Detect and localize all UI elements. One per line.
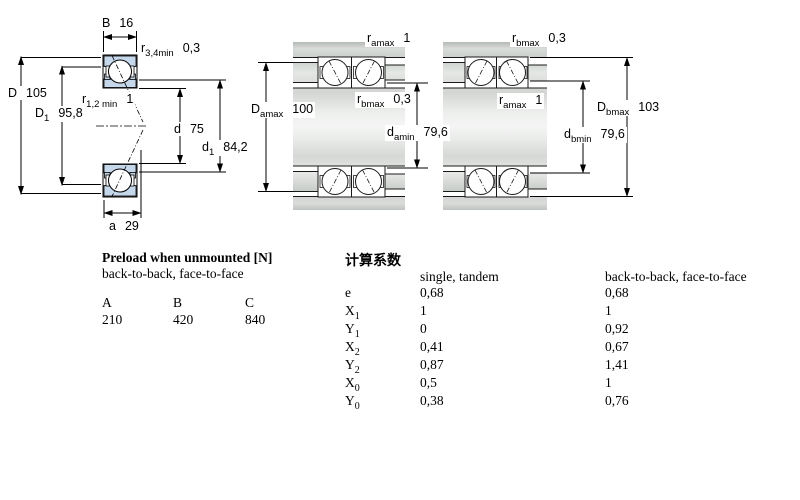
dim-symbol: d <box>174 122 181 136</box>
factor-subscript: 0 <box>355 401 360 412</box>
preload-table-subtitle: back-to-back, face-to-face <box>102 266 315 281</box>
factor-row-label: e <box>345 286 420 302</box>
factor-row-label: Y0 <box>345 394 420 410</box>
dim-value: 1 <box>535 93 542 107</box>
factor-value: 0,38 <box>420 394 605 410</box>
factor-value: 0,92 <box>605 322 775 338</box>
dim-label-r12: r1,2 min1 <box>80 92 135 108</box>
dim-symbol: D <box>597 100 606 114</box>
preload-col-header: A <box>102 295 173 310</box>
dim-subscript: 1 <box>44 113 49 124</box>
factor-row-label: Y1 <box>345 322 420 338</box>
dim-symbol: D <box>8 86 17 100</box>
bearing-pair-top <box>465 57 528 88</box>
dim-label-damin: damin79,6 <box>385 125 450 141</box>
dim-label-dbmin: dbmin79,6 <box>562 127 627 143</box>
bearing-section-bottom <box>103 130 143 197</box>
factor-subscript: 1 <box>355 329 360 340</box>
dim-symbol: B <box>102 16 110 30</box>
dim-label-Dbmax: Dbmax103 <box>595 100 661 116</box>
preload-value: 840 <box>245 312 315 327</box>
bearing-datasheet-page: B16 r3,4min0,3 D105 D195,8 r1,2 min1 d75… <box>0 0 800 500</box>
dim-subscript: bmax <box>606 107 629 118</box>
dim-subscript: amax <box>260 109 283 120</box>
dim-value: 75 <box>190 122 204 136</box>
dim-subscript: bmax <box>361 99 384 110</box>
dim-subscript: 3,4min <box>145 48 174 59</box>
dim-symbol: D <box>35 106 44 120</box>
dim-label-D1: D195,8 <box>33 106 85 122</box>
dim-label-d: d75 <box>172 122 206 136</box>
factor-value: 1 <box>605 304 775 320</box>
factor-value: 1,41 <box>605 358 775 374</box>
factor-value: 1 <box>605 376 775 392</box>
factor-row-label: X2 <box>345 340 420 356</box>
dim-subscript: bmin <box>571 134 592 145</box>
factor-subscript: 0 <box>355 383 360 394</box>
dim-symbol: d <box>387 125 394 139</box>
dim-value: 103 <box>638 100 659 114</box>
dim-value: 29 <box>125 219 139 233</box>
spacer <box>345 270 420 284</box>
dim-label-rbmax-b: rbmax0,3 <box>510 31 568 47</box>
factors-col-header-single: single, tandem <box>420 270 605 284</box>
factor-value: 1 <box>420 304 605 320</box>
preload-value: 420 <box>173 312 245 327</box>
dim-label-r34: r3,4min0,3 <box>139 41 202 57</box>
dim-label-B: B16 <box>100 16 135 30</box>
dim-label-ramax-a: ramax1 <box>365 31 412 47</box>
factor-symbol: e <box>345 285 351 300</box>
factor-value: 0 <box>420 322 605 338</box>
dim-value: 0,3 <box>393 92 410 106</box>
dim-value: 95,8 <box>58 106 82 120</box>
dim-subscript: 1 <box>209 147 214 158</box>
factor-subscript: 2 <box>355 365 360 376</box>
factor-symbol: X <box>345 339 355 354</box>
dim-value: 0,3 <box>548 31 565 45</box>
factor-value: 0,5 <box>420 376 605 392</box>
factor-symbol: Y <box>345 357 355 372</box>
factors-col-header-paired: back-to-back, face-to-face <box>605 270 775 284</box>
dim-label-Damax: Damax100 <box>249 102 315 118</box>
factor-value: 0,68 <box>420 286 605 302</box>
preload-col-header: C <box>245 295 315 310</box>
dim-subscript: 1,2 min <box>86 99 117 110</box>
factor-value: 0,76 <box>605 394 775 410</box>
factor-symbol: Y <box>345 321 355 336</box>
dim-subscript: amin <box>394 132 415 143</box>
dim-value: 1 <box>126 92 133 106</box>
dim-symbol: a <box>109 219 116 233</box>
dim-value: 16 <box>119 16 133 30</box>
factor-row-label: X0 <box>345 376 420 392</box>
factor-value: 0,67 <box>605 340 775 356</box>
dim-value: 79,6 <box>424 125 448 139</box>
preload-col-header: B <box>173 295 245 310</box>
factor-row-label: Y2 <box>345 358 420 374</box>
factor-symbol: X <box>345 375 355 390</box>
dim-label-D: D105 <box>6 86 49 100</box>
dim-label-d1: d184,2 <box>200 140 250 156</box>
bearing-section-top <box>103 55 143 122</box>
factors-table-title: 计算系数 <box>345 250 401 270</box>
mounted-pair-diagram-b <box>443 42 633 210</box>
factor-value: 0,68 <box>605 286 775 302</box>
dim-subscript: bmax <box>516 38 539 49</box>
bearing-pair-top <box>318 57 385 88</box>
preload-table-grid: A B C 210 420 840 <box>102 295 315 327</box>
dim-value: 79,6 <box>601 127 625 141</box>
factor-row-label: X1 <box>345 304 420 320</box>
preload-table: Preload when unmounted [N] back-to-back,… <box>102 250 315 327</box>
dim-symbol: d <box>202 140 209 154</box>
factor-value: 0,87 <box>420 358 605 374</box>
bearing-pair-bottom <box>318 166 385 197</box>
dim-label-a: a29 <box>107 219 141 233</box>
dim-value: 100 <box>292 102 313 116</box>
factor-value: 0,41 <box>420 340 605 356</box>
dim-value: 84,2 <box>223 140 247 154</box>
dim-symbol: d <box>564 127 571 141</box>
dim-label-rbmax-a: rbmax0,3 <box>355 92 413 108</box>
factor-symbol: Y <box>345 393 355 408</box>
dim-symbol: D <box>251 102 260 116</box>
preload-table-title: Preload when unmounted [N] <box>102 250 315 265</box>
dim-value: 105 <box>26 86 47 100</box>
factor-subscript: 1 <box>355 311 360 322</box>
dim-label-ramax-b: ramax1 <box>497 93 544 109</box>
preload-value: 210 <box>102 312 173 327</box>
factor-symbol: X <box>345 303 355 318</box>
factor-subscript: 2 <box>355 347 360 358</box>
dim-subscript: amax <box>503 100 526 111</box>
factors-table: single, tandem back-to-back, face-to-fac… <box>345 270 775 410</box>
bearing-pair-bottom <box>465 166 528 197</box>
dim-value: 0,3 <box>183 41 200 55</box>
dim-value: 1 <box>403 31 410 45</box>
dim-subscript: amax <box>371 38 394 49</box>
